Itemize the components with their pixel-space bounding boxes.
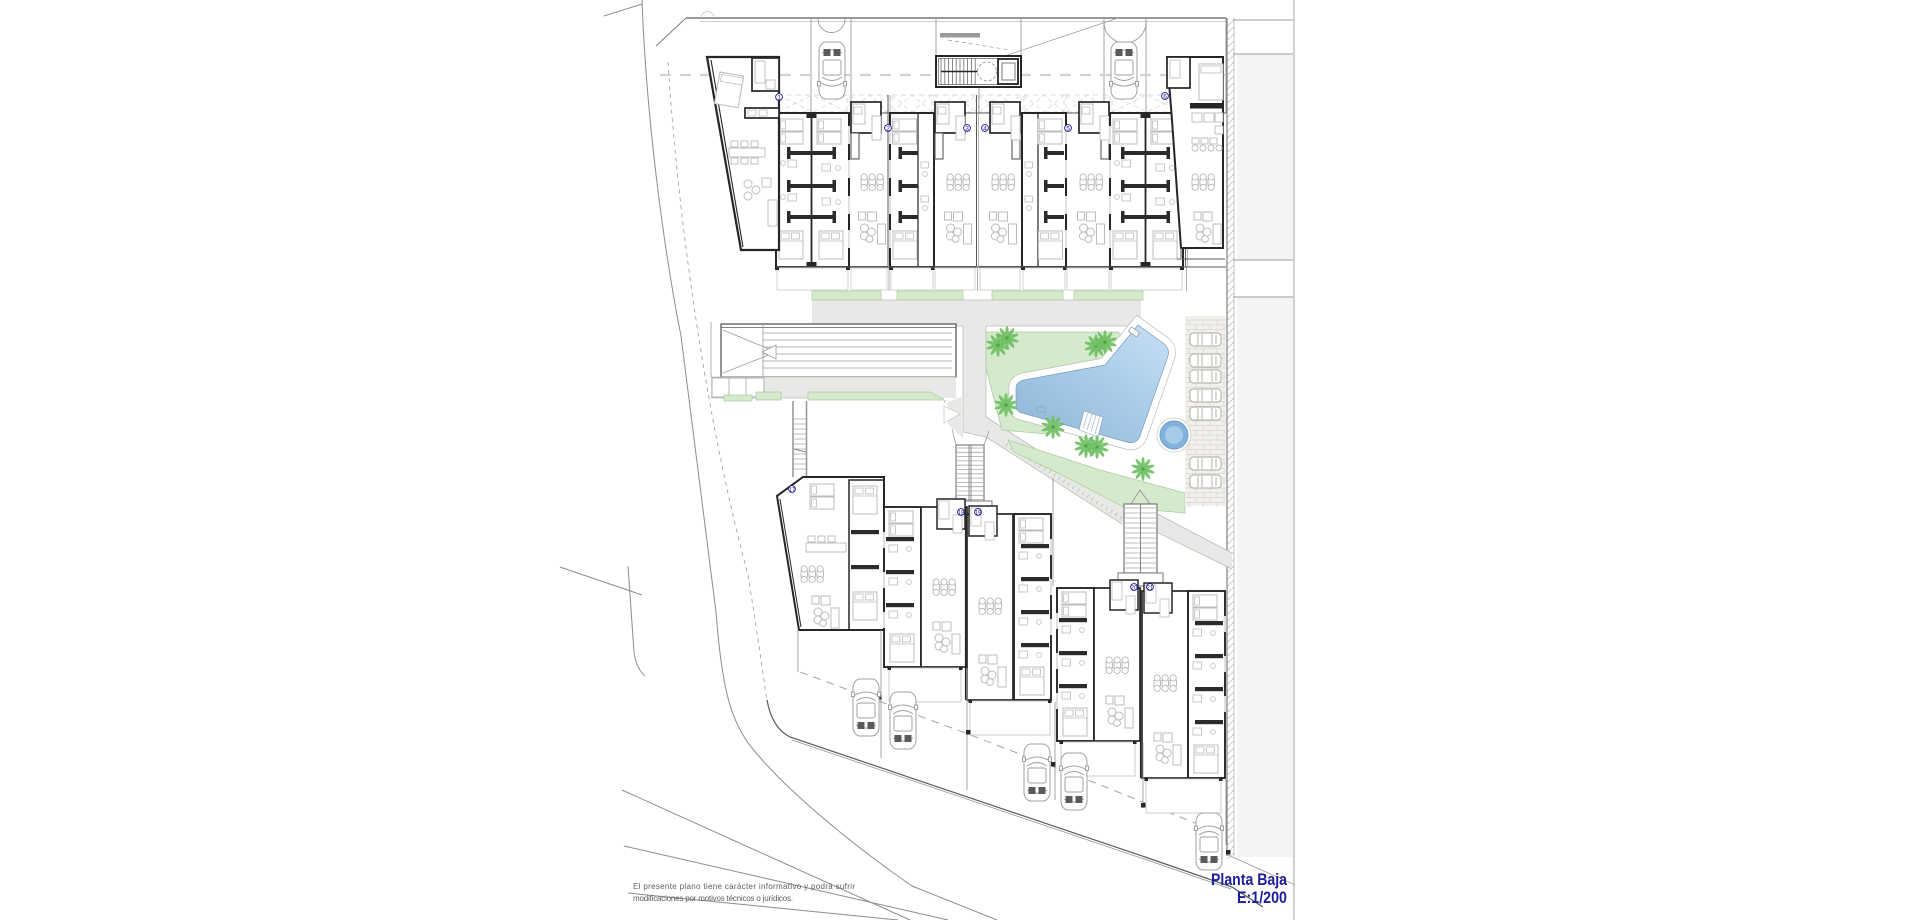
svg-text:4: 4: [983, 126, 987, 133]
svg-text:Planta Baja: Planta Baja: [1211, 871, 1288, 889]
svg-text:3: 3: [965, 126, 969, 133]
svg-text:5: 5: [1066, 126, 1070, 133]
svg-text:18: 18: [958, 511, 965, 517]
svg-text:2: 2: [886, 126, 890, 133]
svg-text:6: 6: [1163, 94, 1167, 101]
svg-text:20: 20: [1131, 586, 1138, 592]
svg-text:19: 19: [975, 511, 982, 517]
svg-text:21: 21: [1147, 586, 1154, 592]
svg-text:modificaciones por motivos téc: modificaciones por motivos técnicos o ju…: [633, 894, 793, 903]
svg-text:17: 17: [789, 488, 796, 494]
svg-text:E:1/200: E:1/200: [1237, 889, 1287, 907]
svg-text:1: 1: [777, 95, 781, 102]
svg-text:El presente plano tiene caráct: El presente plano tiene carácter informa…: [633, 882, 855, 891]
